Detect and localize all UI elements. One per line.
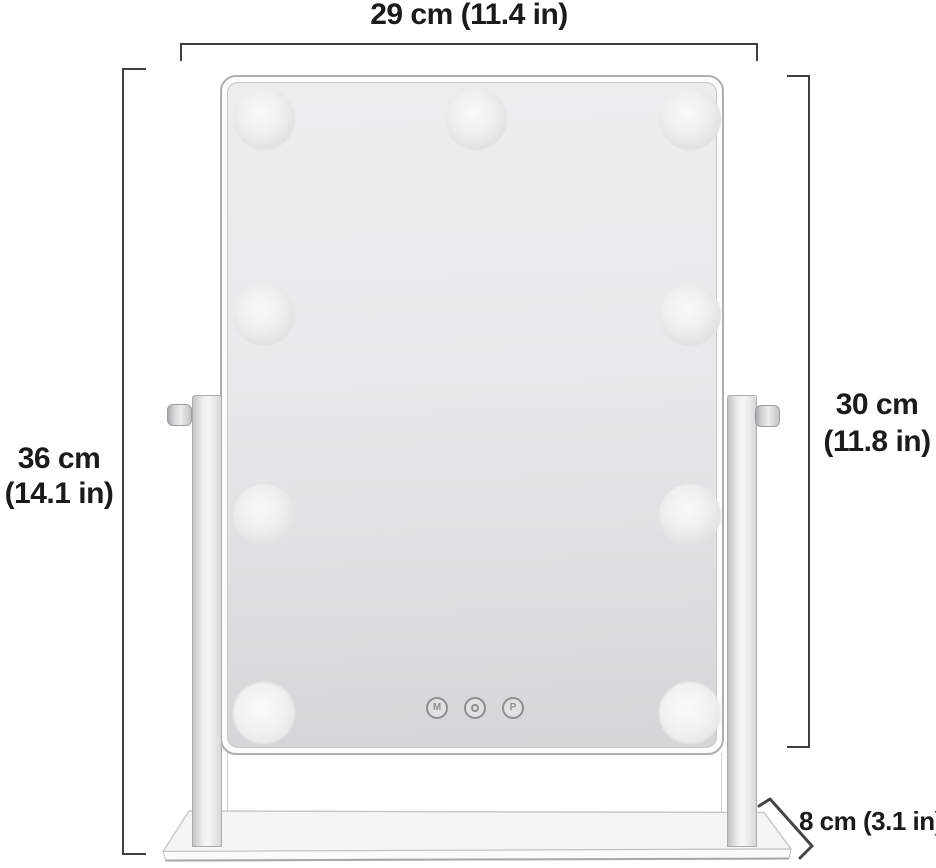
hinge-knob-right xyxy=(755,405,780,427)
total-height-dimension-cap-bottom xyxy=(122,853,146,855)
stand-post-right xyxy=(727,395,757,847)
mirror-lower-panel xyxy=(227,753,722,813)
light-bulb xyxy=(659,484,721,546)
total-height-dimension-line xyxy=(122,68,124,855)
mirror-height-dimension-line xyxy=(808,75,810,748)
base-front-face xyxy=(163,849,791,861)
total-height-value: 36 cm xyxy=(0,441,122,476)
width-dimension-line xyxy=(180,43,758,45)
mirror-glass xyxy=(227,82,717,748)
mirror-height-value: 30 cm xyxy=(816,386,936,423)
light-bulb xyxy=(659,88,721,150)
width-dimension-cap-right xyxy=(756,43,758,61)
stand-post-left xyxy=(192,395,222,847)
light-bulb xyxy=(445,88,507,150)
mirror-height-dimension-cap-bottom xyxy=(787,746,810,748)
total-height-inches: (14.1 in) xyxy=(0,476,122,511)
m-button: M xyxy=(426,697,448,719)
light-bulb xyxy=(233,284,295,346)
width-dimension-label: 29 cm (11.4 in) xyxy=(180,0,758,32)
light-bulb xyxy=(659,682,721,744)
mirror-height-inches: (11.8 in) xyxy=(816,423,936,460)
p-button: P xyxy=(502,697,524,719)
light-bulb xyxy=(233,682,295,744)
depth-dimension-label: 8 cm (3.1 in) xyxy=(799,804,936,839)
mirror-height-dimension-cap-top xyxy=(787,75,810,77)
light-bulb xyxy=(233,88,295,150)
light-bulb xyxy=(659,284,721,346)
hinge-knob-left xyxy=(167,404,192,426)
power-icon xyxy=(471,704,479,712)
width-dimension-cap-left xyxy=(180,43,182,61)
total-height-dimension-label: 36 cm (14.1 in) xyxy=(0,441,122,511)
power-button xyxy=(464,697,486,719)
base-bottom-edge xyxy=(166,859,788,861)
mirror-control-buttons: M P xyxy=(426,697,524,719)
mirror-height-dimension-label: 30 cm (11.8 in) xyxy=(816,386,936,460)
base-top-surface xyxy=(163,811,791,852)
product-dimension-diagram: 29 cm (11.4 in) 36 cm (14.1 in) 30 cm (1… xyxy=(0,0,936,868)
vanity-mirror: M P xyxy=(220,75,724,755)
total-height-dimension-cap-top xyxy=(122,68,146,70)
light-bulb xyxy=(233,484,295,546)
